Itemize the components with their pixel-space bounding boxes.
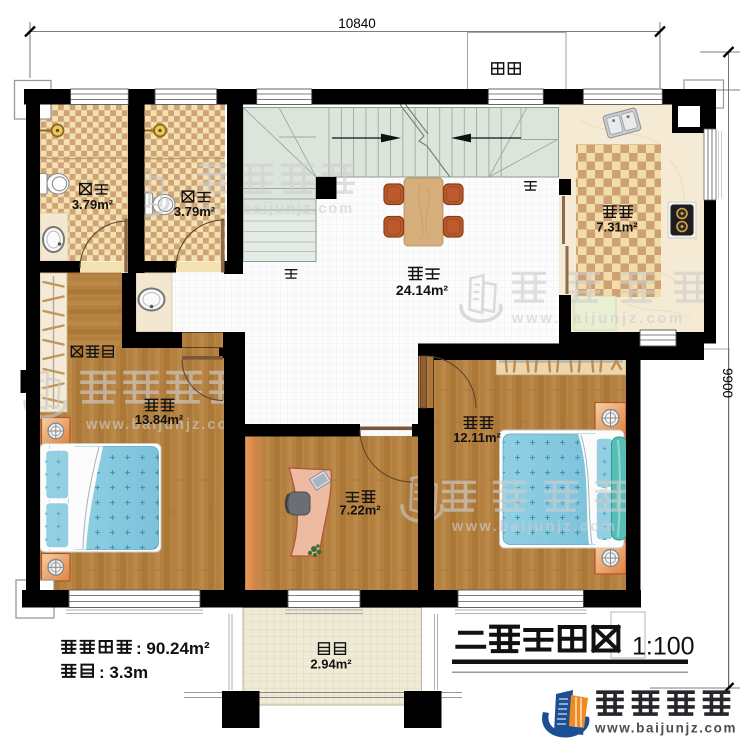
svg-text:www.baijunjz.com: www.baijunjz.com: [451, 519, 617, 535]
svg-text:www.baijunjz.com: www.baijunjz.com: [511, 311, 685, 327]
svg-text:7.22m²: 7.22m²: [339, 503, 381, 518]
svg-text:13.84m²: 13.84m²: [135, 412, 184, 427]
svg-text:: 3.3m: : 3.3m: [99, 663, 148, 682]
svg-text:12.11m²: 12.11m²: [453, 430, 501, 445]
svg-text:: 90.24m²: : 90.24m²: [136, 639, 210, 658]
svg-text:www.baijunjz.com: www.baijunjz.com: [196, 201, 354, 217]
svg-text:9900: 9900: [720, 368, 735, 398]
svg-text:24.14m²: 24.14m²: [396, 282, 448, 298]
svg-text:10840: 10840: [338, 16, 376, 31]
svg-text:www.baijunjz.com: www.baijunjz.com: [594, 721, 737, 736]
svg-text:7.31m²: 7.31m²: [596, 220, 638, 235]
svg-text:1:100: 1:100: [632, 633, 695, 661]
svg-text:3.79m²: 3.79m²: [72, 197, 114, 212]
svg-text:3.79m²: 3.79m²: [174, 204, 216, 219]
svg-text:2.94m²: 2.94m²: [310, 657, 352, 672]
